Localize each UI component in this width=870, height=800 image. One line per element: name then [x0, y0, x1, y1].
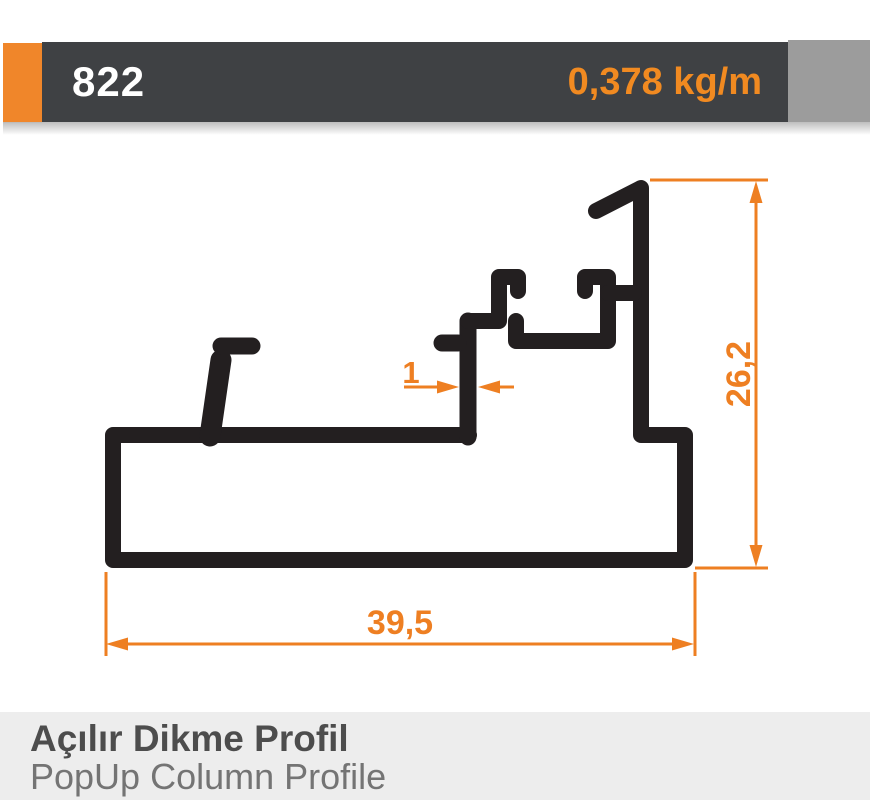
dim-wall-label: 1 [402, 355, 419, 390]
dim-width-arrow-right [672, 638, 694, 651]
profile-left-hook [468, 277, 518, 321]
dim-wall-arrow-left [437, 381, 459, 394]
profile-main-outline [113, 188, 685, 560]
dim-width-arrow-left [106, 638, 128, 651]
profile-name-turkish: Açılır Dikme Profil [30, 718, 349, 760]
dim-wall-arrow-right [478, 381, 500, 394]
dim-height-arrow-top [750, 181, 763, 203]
profile-shape [113, 188, 685, 560]
dim-height-label: 26,2 [720, 341, 758, 407]
profile-cross-section-drawing: 39,5 26,2 1 [0, 0, 870, 800]
dim-height-arrow-bottom [750, 545, 763, 567]
catalog-page: 822 0,378 kg/m [0, 0, 870, 800]
profile-right-hook [516, 277, 608, 341]
profile-name-english: PopUp Column Profile [30, 756, 386, 798]
footer-band: Açılır Dikme Profil PopUp Column Profile [0, 712, 870, 800]
profile-leg [210, 360, 221, 436]
dim-width-label: 39,5 [367, 604, 433, 642]
